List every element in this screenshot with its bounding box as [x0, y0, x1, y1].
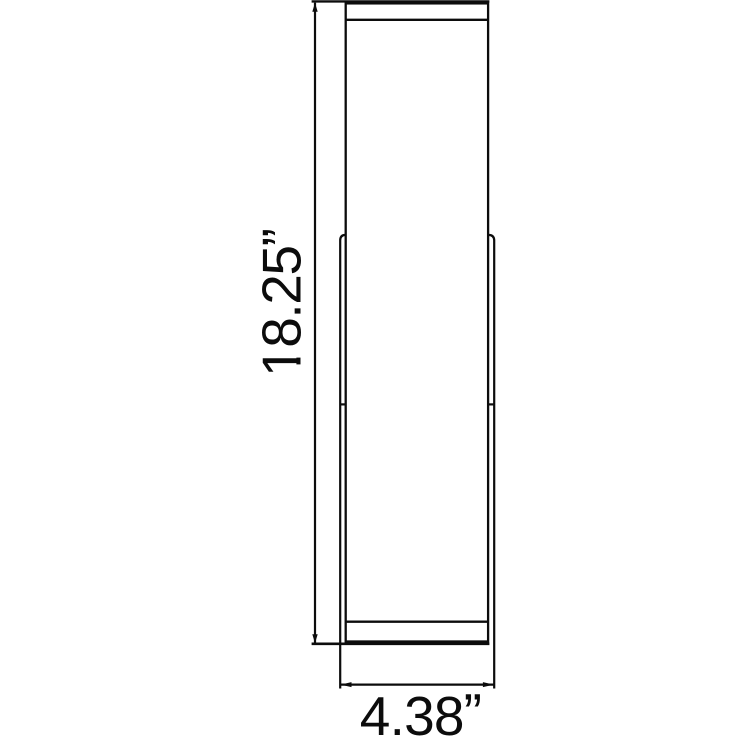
svg-text:18.25”: 18.25” [250, 229, 312, 377]
svg-text:4.38”: 4.38” [360, 682, 481, 747]
